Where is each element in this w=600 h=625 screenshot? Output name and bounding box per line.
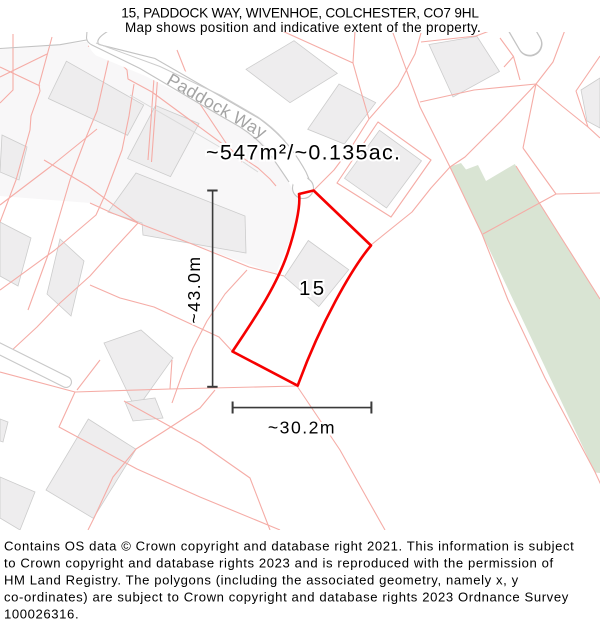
svg-text:15, PADDOCK WAY, WIVENHOE, COL: 15, PADDOCK WAY, WIVENHOE, COLCHESTER, C…: [121, 5, 479, 20]
svg-text:Contains OS data © Crown copyr: Contains OS data © Crown copyright and d…: [4, 539, 574, 554]
svg-text:to Crown copyright and databas: to Crown copyright and database rights 2…: [4, 556, 554, 571]
svg-text:co-ordinates) are subject to C: co-ordinates) are subject to Crown copyr…: [4, 590, 569, 605]
svg-text:15: 15: [299, 277, 327, 300]
svg-text:HM Land Registry. The polygons: HM Land Registry. The polygons (includin…: [4, 573, 519, 588]
svg-text:~547m²/~0.135ac.: ~547m²/~0.135ac.: [206, 141, 401, 165]
svg-text:~43.0m: ~43.0m: [184, 255, 204, 323]
svg-text:100026316.: 100026316.: [4, 607, 79, 622]
svg-text:Map shows position and indicat: Map shows position and indicative extent…: [125, 20, 481, 35]
svg-text:~30.2m: ~30.2m: [268, 418, 336, 438]
